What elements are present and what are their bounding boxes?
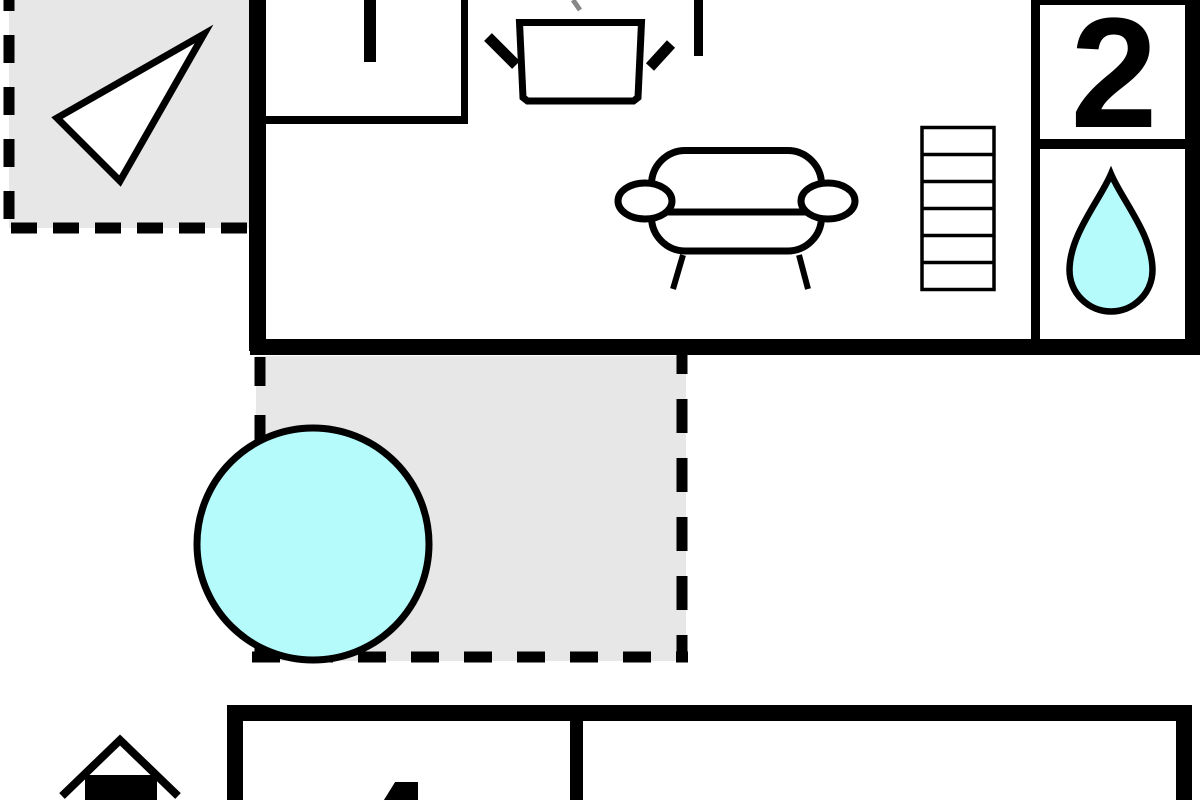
svg-text:4: 4 — [350, 749, 433, 800]
svg-text:2: 2 — [1071, 0, 1158, 161]
